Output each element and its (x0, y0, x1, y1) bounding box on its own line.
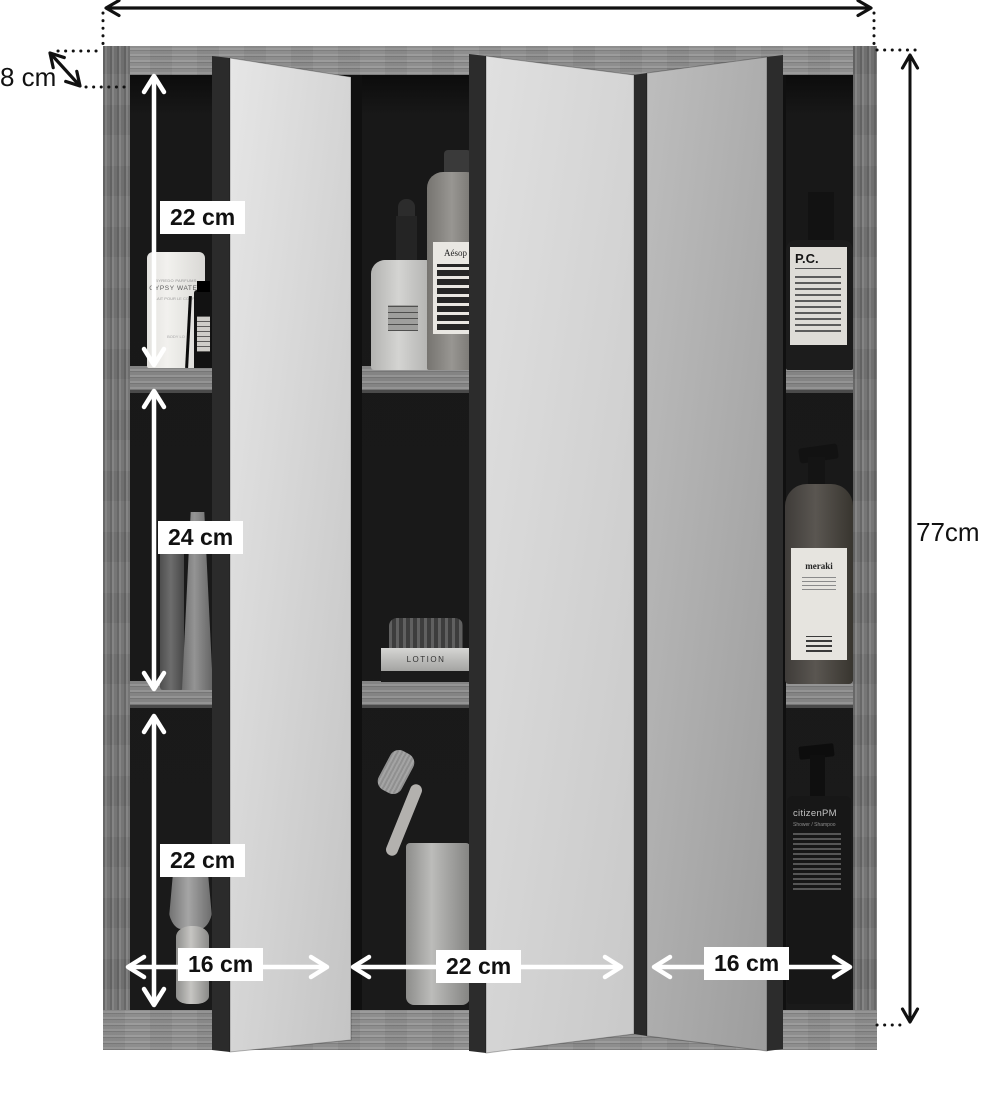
dimension-lines-layer (0, 0, 984, 1107)
product-dimension-diagram: BYREDO PARFUMS GYPSY WATER LAIT POUR LE … (0, 0, 984, 1107)
dimension-label-width-middle: 22 cm (436, 950, 521, 983)
dimension-label-height: 77cm (916, 517, 980, 548)
dimension-label-section-middle: 24 cm (158, 521, 243, 554)
dimension-label-section-top: 22 cm (160, 201, 245, 234)
dimension-label-section-bottom: 22 cm (160, 844, 245, 877)
dimension-label-depth: 8 cm (0, 62, 56, 93)
dimension-label-width-left: 16 cm (178, 948, 263, 981)
dimension-label-width-right: 16 cm (704, 947, 789, 980)
